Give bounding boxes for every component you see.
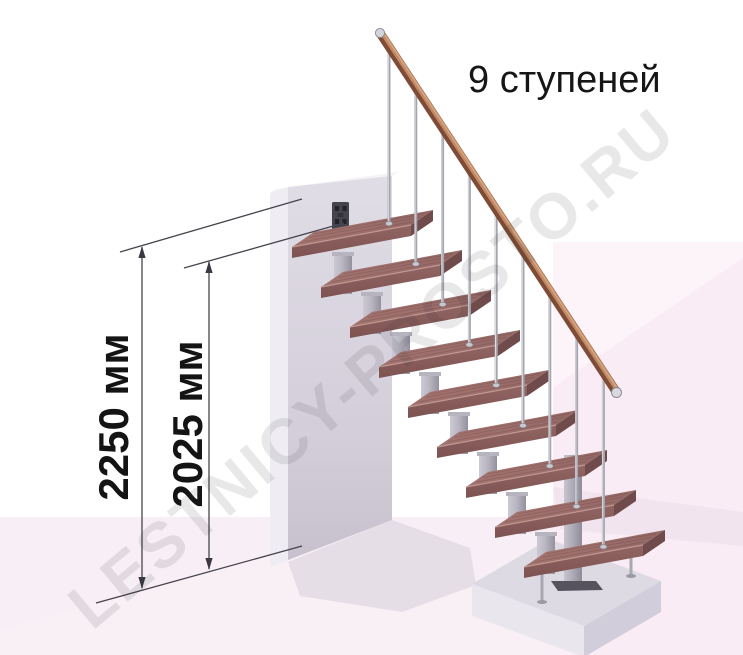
staircase-diagram: 2250 мм 2025 мм 9 ступеней LESTNICY-PROS… bbox=[0, 0, 743, 655]
baluster-foot bbox=[520, 423, 527, 427]
baluster-foot bbox=[386, 221, 393, 225]
baluster-foot bbox=[546, 464, 553, 468]
strut-flange bbox=[332, 252, 354, 256]
handrail-end-cap bbox=[612, 388, 622, 398]
strut-flange bbox=[506, 492, 528, 496]
dimension-label-2250: 2250 мм bbox=[90, 333, 137, 500]
diagram-canvas: 2250 мм 2025 мм 9 ступеней LESTNICY-PROS… bbox=[0, 0, 743, 655]
baluster-foot bbox=[493, 383, 500, 387]
baluster-foot bbox=[573, 504, 580, 508]
strut-flange bbox=[361, 292, 383, 296]
baluster-foot bbox=[600, 545, 607, 549]
strut-flange bbox=[535, 532, 557, 536]
handrail-top-cap bbox=[375, 28, 384, 37]
wall-left-face bbox=[270, 187, 288, 567]
strut-flange bbox=[477, 452, 499, 456]
strut-flange bbox=[448, 412, 470, 416]
baluster-foot bbox=[412, 262, 419, 266]
column-base-plate bbox=[551, 581, 603, 591]
steps-count-label: 9 ступеней bbox=[468, 59, 661, 101]
baluster-foot bbox=[466, 343, 473, 347]
